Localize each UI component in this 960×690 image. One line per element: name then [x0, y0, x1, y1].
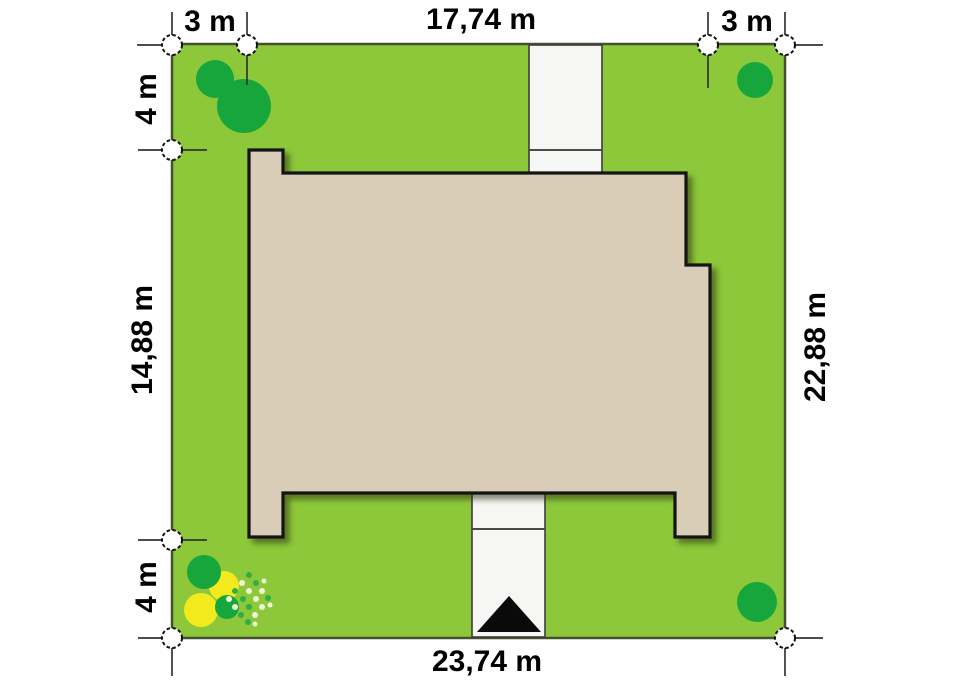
survey-marker-top-right-corner — [775, 35, 795, 55]
survey-marker-bottom-right-corner — [775, 628, 795, 648]
survey-marker-left-offset-bottom — [162, 530, 182, 550]
survey-marker-left-offset-top — [162, 140, 182, 160]
bush-yellow-large — [184, 593, 218, 627]
tree-bottom-right — [737, 582, 777, 622]
dim-house-depth: 14,88 m — [128, 285, 158, 395]
dim-left-bottom-offset: 4 m — [132, 561, 162, 613]
dim-plot-width: 23,74 m — [432, 647, 542, 677]
tree-top-right — [737, 62, 773, 98]
dim-top-right-offset: 3 m — [721, 7, 773, 37]
tree-top-left-large — [217, 79, 271, 133]
site-plan: 3 m 17,74 m 3 m 4 m 14,88 m 4 m 22,88 m … — [0, 0, 960, 690]
dim-left-top-offset: 4 m — [132, 73, 162, 125]
bush-green-large — [187, 555, 221, 589]
dim-house-width: 17,74 m — [426, 5, 536, 35]
survey-marker-top-offset-right — [698, 35, 718, 55]
dim-plot-depth: 22,88 m — [801, 292, 831, 402]
survey-marker-top-left-corner — [162, 35, 182, 55]
house-footprint — [249, 150, 710, 537]
survey-marker-bottom-left-corner — [162, 628, 182, 648]
survey-marker-top-offset-left — [237, 35, 257, 55]
dim-top-left-offset: 3 m — [184, 7, 236, 37]
driveway-top — [529, 45, 602, 174]
